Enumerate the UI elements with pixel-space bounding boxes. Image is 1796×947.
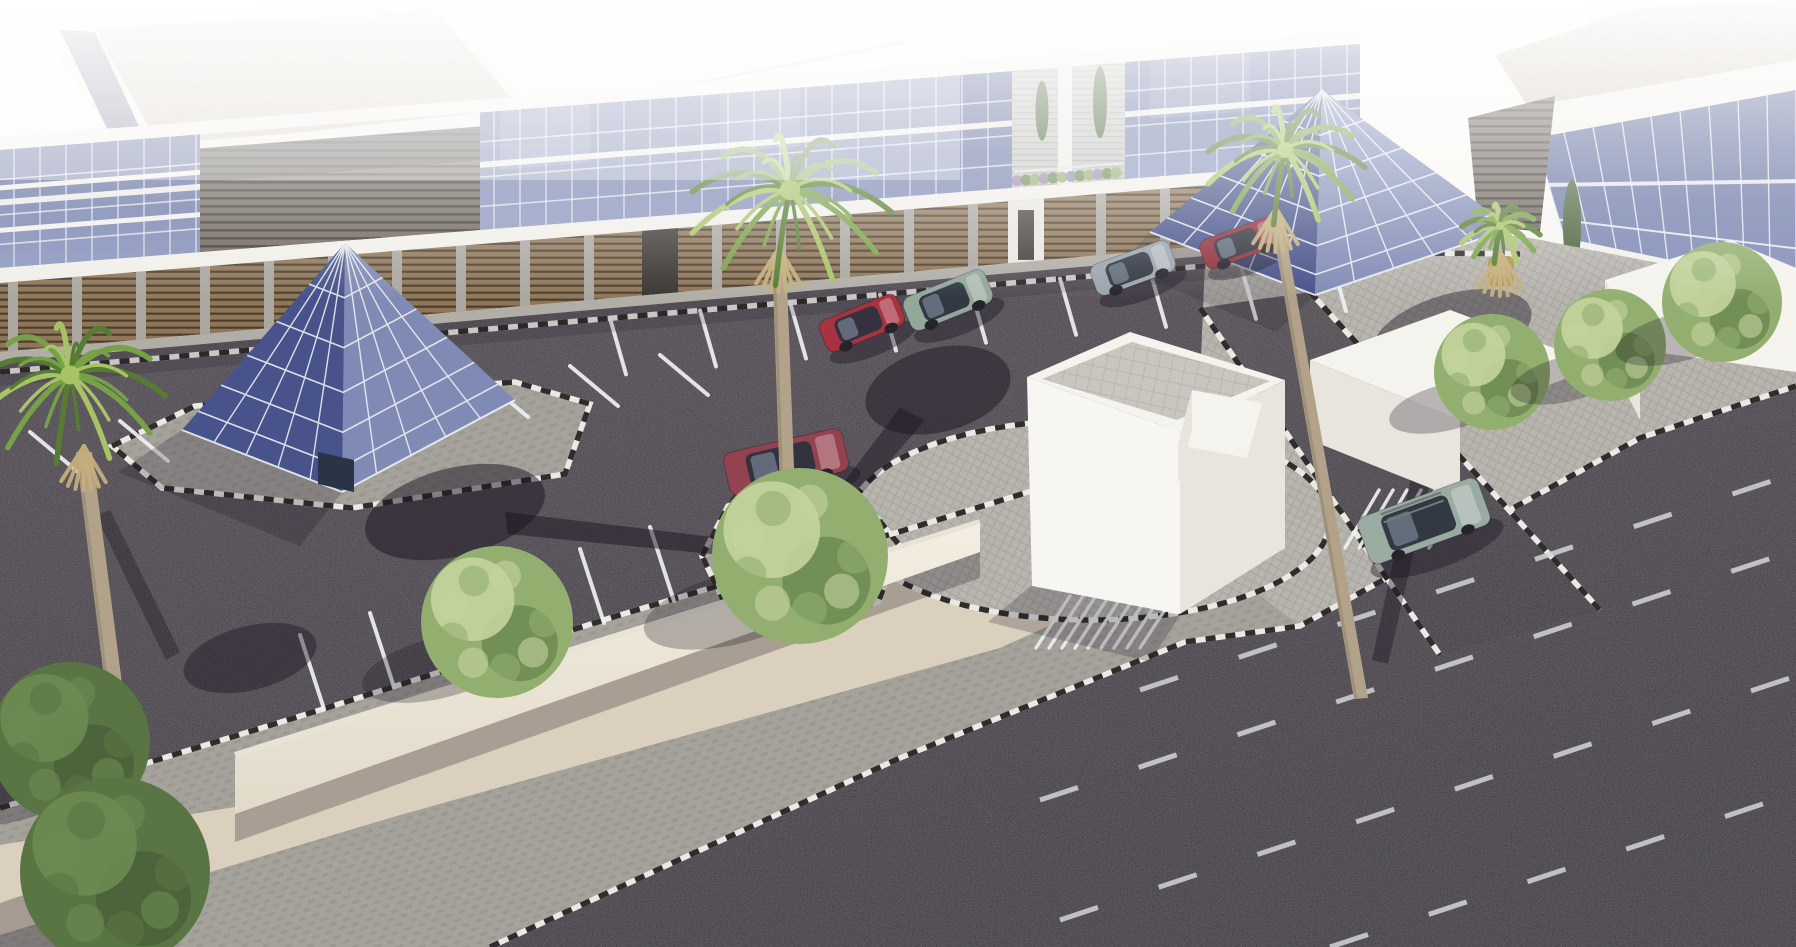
- sunlight-haze: [0, 0, 1796, 300]
- architectural-rendering: [0, 0, 1796, 947]
- scene-canvas: [0, 0, 1796, 947]
